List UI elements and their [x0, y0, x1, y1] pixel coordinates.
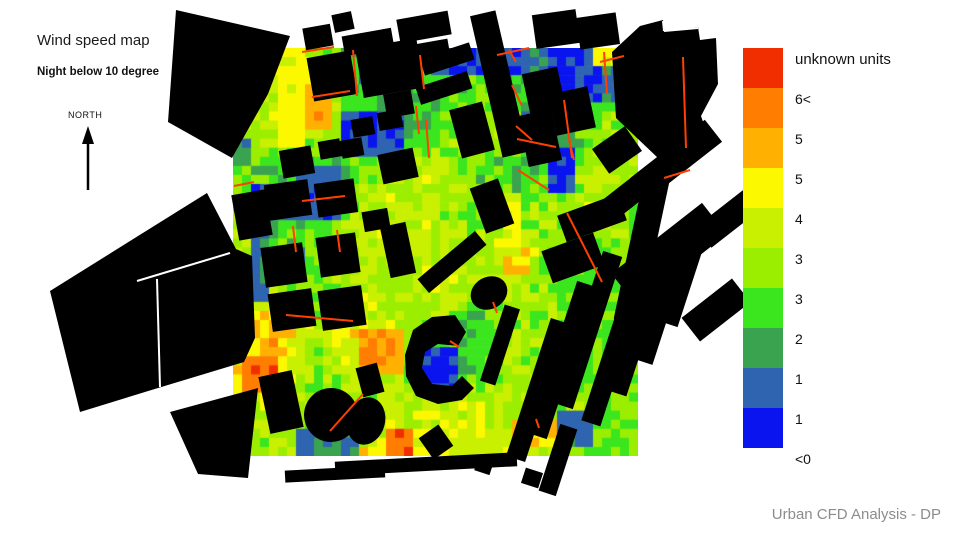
legend-swatch — [743, 288, 783, 328]
hot-street-line — [683, 57, 686, 148]
legend-label: 3 — [795, 291, 803, 307]
legend-label: <0 — [795, 451, 811, 467]
legend-swatch — [743, 168, 783, 208]
north-arrow-icon — [82, 126, 94, 190]
legend-label: 3 — [795, 251, 803, 267]
footer-credit: Urban CFD Analysis - DP — [0, 506, 941, 523]
legend-swatch — [743, 368, 783, 408]
legend-swatch — [743, 208, 783, 248]
legend-label: 1 — [795, 371, 803, 387]
map-subtitle: Night below 10 degree — [37, 66, 159, 78]
building-footprint — [302, 24, 333, 51]
building-footprint — [331, 11, 354, 33]
building-footprint — [532, 9, 580, 49]
building-footprint — [474, 457, 494, 475]
legend-label: 5 — [795, 171, 803, 187]
building-footprint — [660, 217, 711, 327]
legend-label: 4 — [795, 211, 803, 227]
building-footprint — [396, 11, 451, 44]
building-footprint — [50, 193, 255, 412]
legend-swatch — [743, 128, 783, 168]
map-title: Wind speed map — [37, 32, 150, 49]
building-footprint — [630, 120, 722, 201]
building-footprint — [682, 278, 751, 341]
legend-swatch — [743, 408, 783, 448]
building-footprint — [576, 12, 620, 49]
legend-swatch — [743, 88, 783, 128]
legend-swatch — [743, 248, 783, 288]
legend-swatch — [743, 328, 783, 368]
legend-label: 1 — [795, 411, 803, 427]
legend-title: unknown units — [795, 51, 891, 68]
legend-label: 5 — [795, 131, 803, 147]
north-arrow-head — [82, 126, 94, 144]
building-outline-line — [664, 28, 698, 31]
legend-swatch — [743, 48, 783, 88]
north-label: NORTH — [68, 110, 102, 120]
building-outline-line — [137, 253, 230, 281]
legend-label: 2 — [795, 331, 803, 347]
wind-heatmap — [233, 48, 638, 456]
building-footprint — [633, 235, 692, 365]
hot-street-line — [664, 170, 690, 178]
building-footprint — [521, 468, 543, 489]
building-outline-line — [663, 21, 664, 31]
building-outline-line — [157, 279, 160, 387]
building-footprint — [285, 465, 385, 482]
legend-label: 6< — [795, 91, 811, 107]
